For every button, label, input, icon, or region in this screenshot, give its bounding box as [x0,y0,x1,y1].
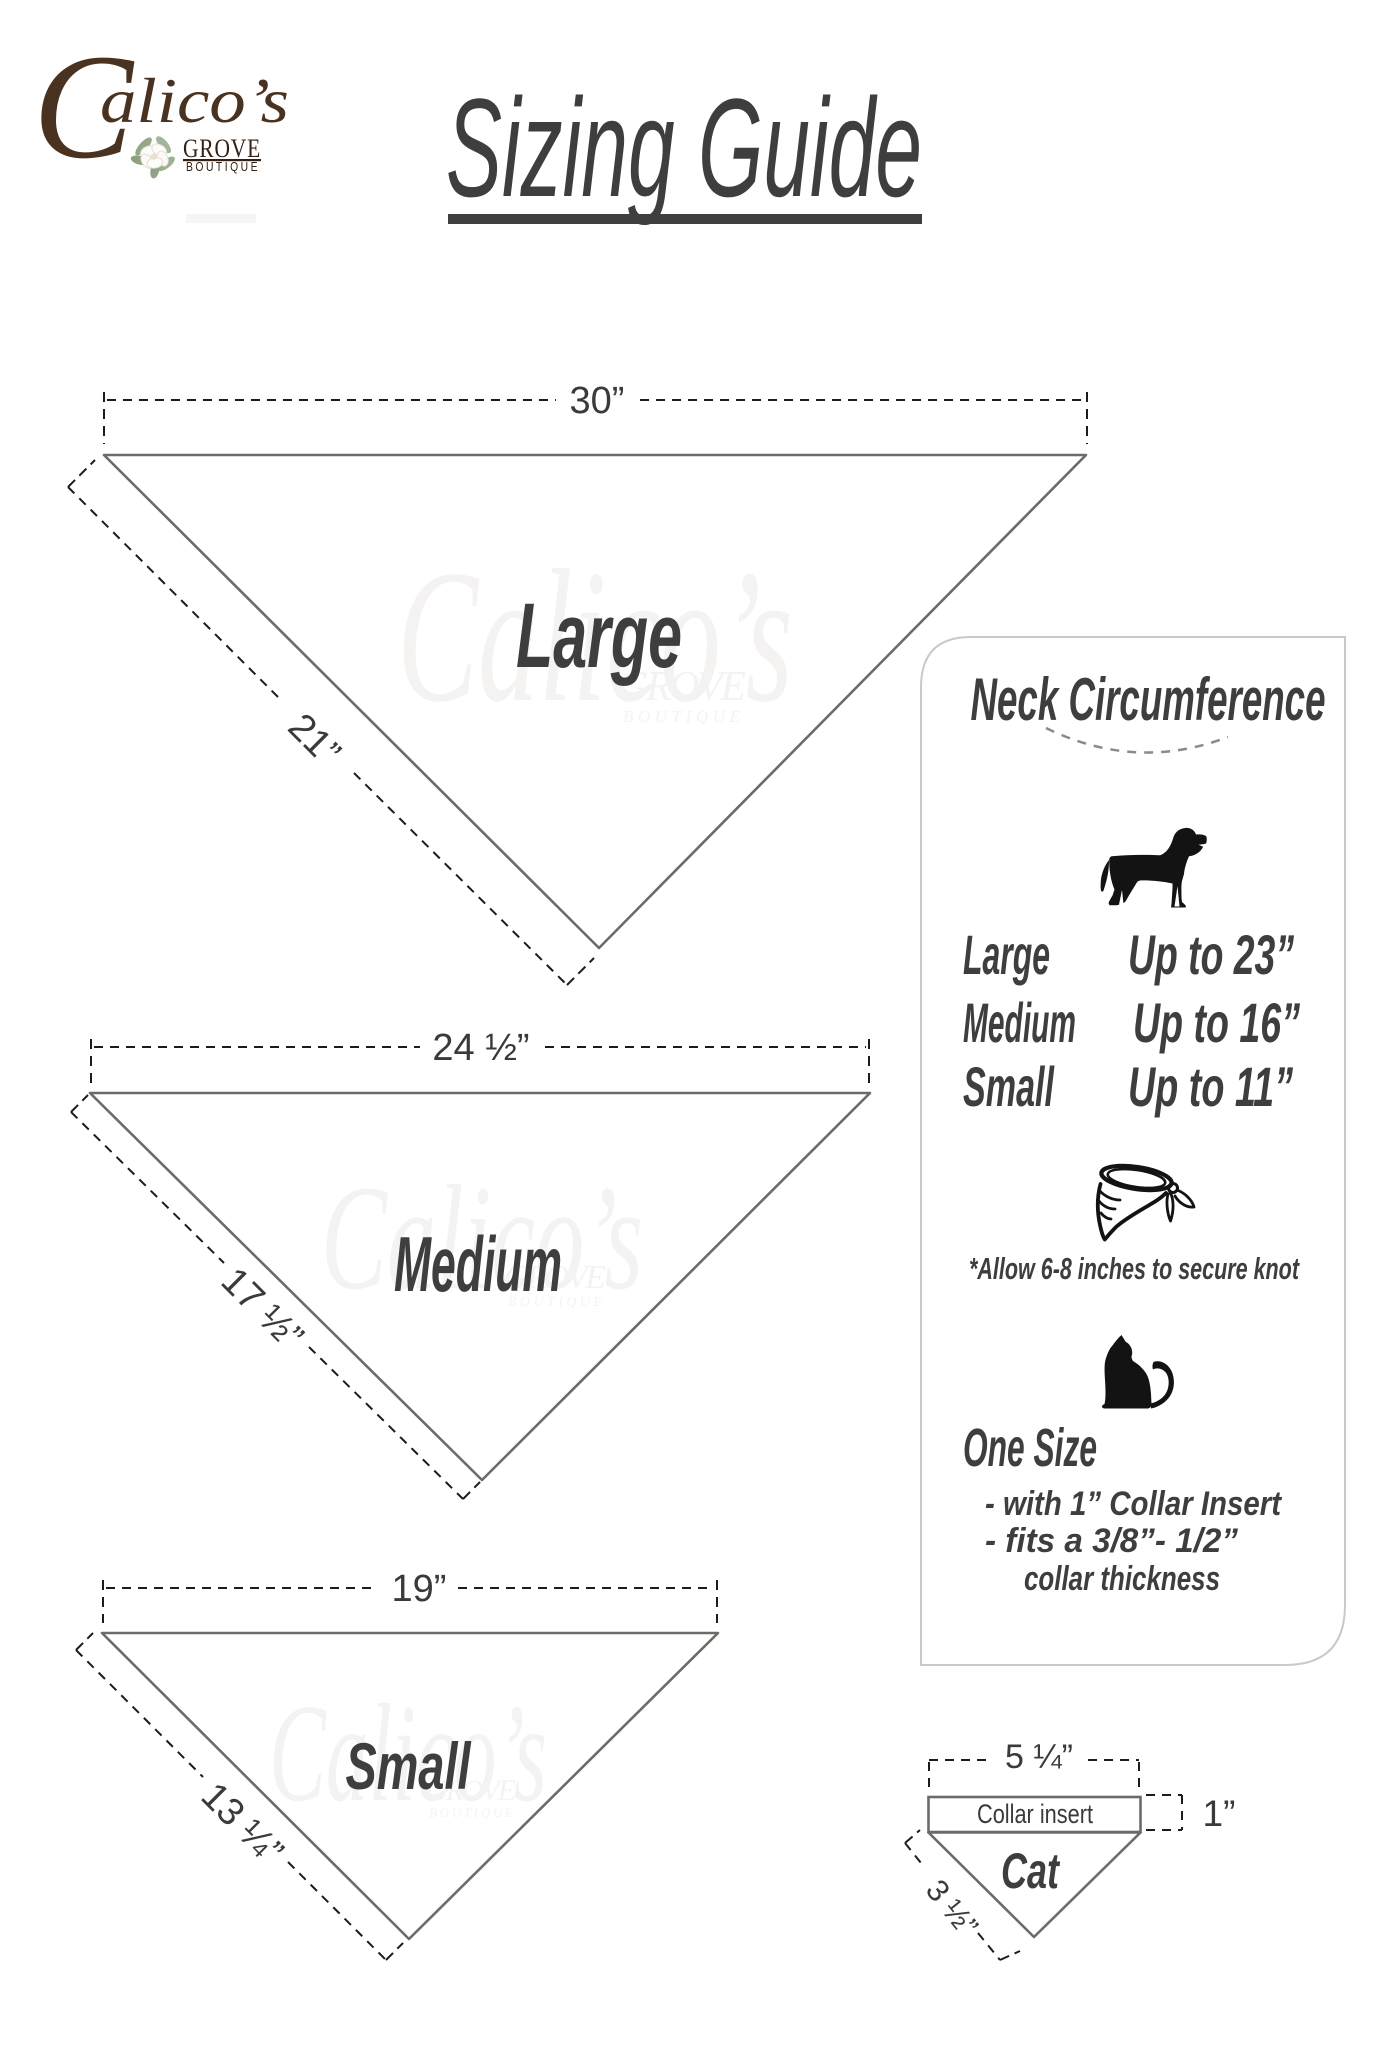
svg-text:GROVE: GROVE [183,134,261,163]
svg-text:Up to 23”: Up to 23” [1128,923,1294,986]
svg-text:- fits a 3/8”- 1/2”: - fits a 3/8”- 1/2” [985,1522,1238,1560]
svg-text:One Size: One Size [963,1418,1097,1478]
svg-text:alico’s: alico’s [100,65,289,136]
svg-text:Collar insert: Collar insert [977,1799,1093,1829]
svg-text:30”: 30” [570,380,625,422]
svg-text:collar thickness: collar thickness [1024,1560,1220,1598]
svg-text:Cat: Cat [1001,1843,1061,1899]
svg-text:Sizing Guide: Sizing Guide [446,69,922,226]
svg-text:Up to 16”: Up to 16” [1133,991,1300,1054]
svg-text:1”: 1” [1203,1793,1236,1834]
svg-text:- with 1” Collar Insert: - with 1” Collar Insert [985,1485,1282,1523]
svg-text:BOUTIQUE: BOUTIQUE [623,707,743,726]
svg-text:19”: 19” [392,1568,447,1610]
svg-text:Up to 11”: Up to 11” [1128,1055,1293,1118]
svg-text:Medium: Medium [394,1220,562,1308]
svg-text:5 ¼”: 5 ¼” [1005,1738,1073,1776]
svg-text:Medium: Medium [963,991,1076,1054]
svg-text:Large: Large [963,923,1050,986]
svg-text:Neck Circumference: Neck Circumference [971,666,1326,733]
svg-text:24 ½”: 24 ½” [432,1027,529,1069]
svg-text:BOUTIQUE: BOUTIQUE [429,1805,515,1820]
svg-text:Large: Large [516,585,682,687]
svg-text:BOUTIQUE: BOUTIQUE [186,160,260,174]
svg-text:Small: Small [963,1055,1055,1118]
svg-text:Small: Small [346,1729,472,1803]
svg-text:*Allow 6-8 inches to secure kn: *Allow 6-8 inches to secure knot [969,1251,1300,1286]
